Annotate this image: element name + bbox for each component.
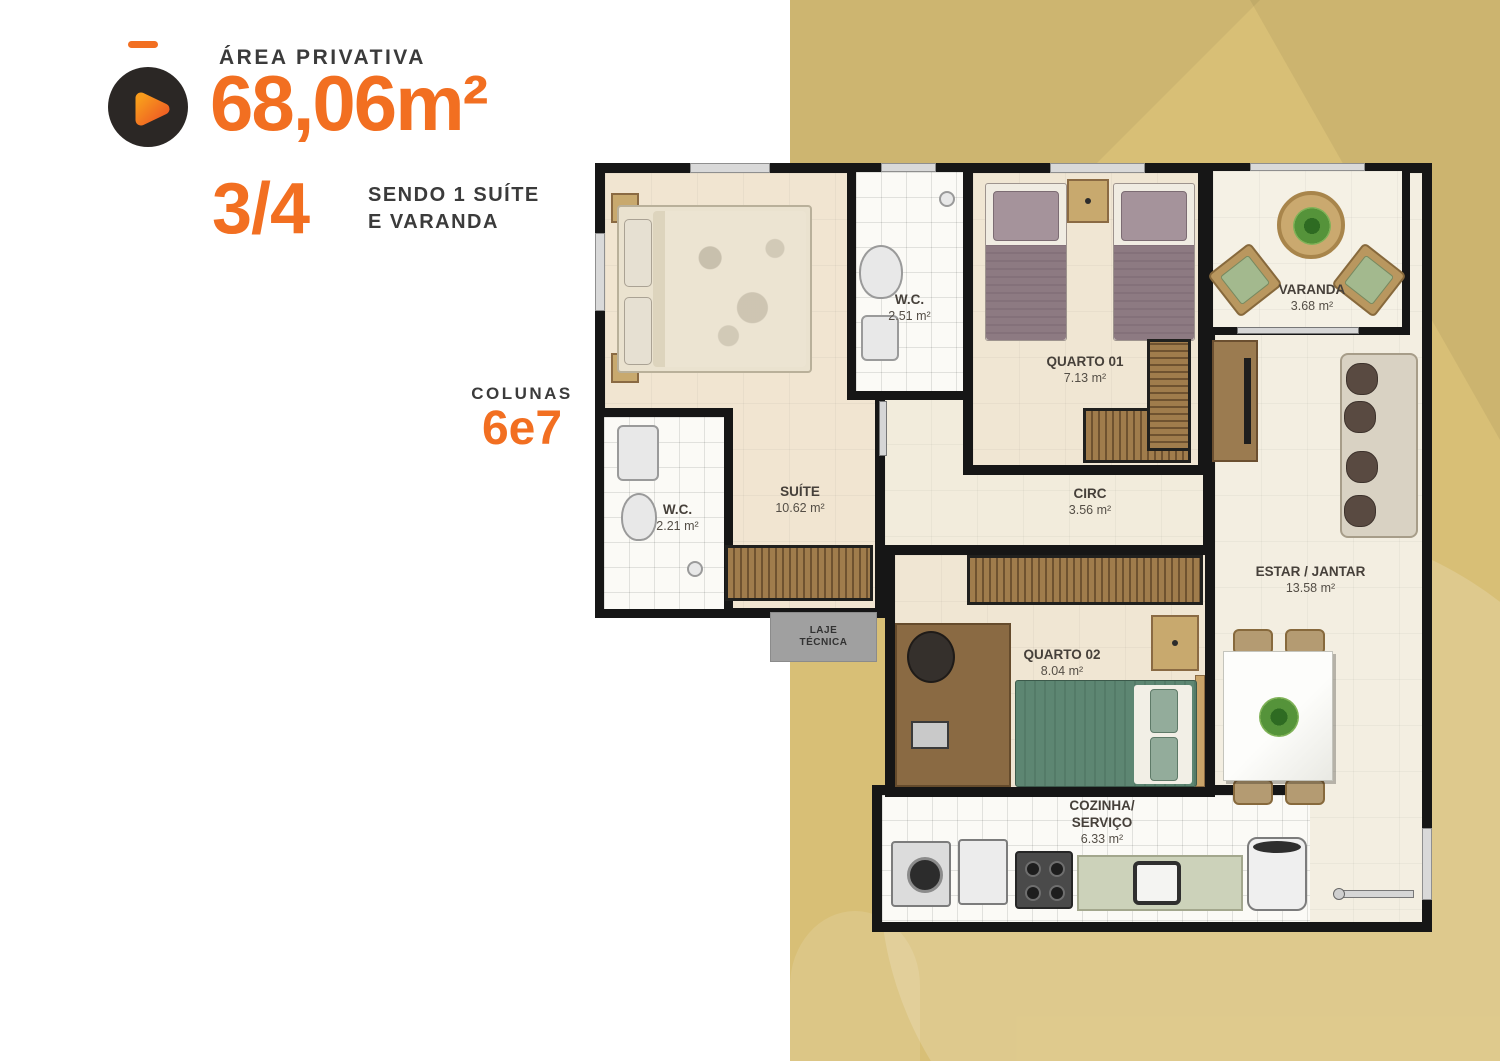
varanda-round-table xyxy=(1277,191,1345,259)
gold-facet-light-curve xyxy=(790,911,920,1061)
room-label-estar: ESTAR / JANTAR 13.58 m² xyxy=(1223,563,1398,597)
entrance-door-knob xyxy=(1333,888,1345,900)
washing-machine xyxy=(891,841,951,907)
window xyxy=(1050,163,1145,173)
floorplan: LAJE TÉCNICA xyxy=(595,163,1432,932)
window xyxy=(881,163,936,172)
room-label-quarto02: QUARTO 02 8.04 m² xyxy=(987,646,1137,680)
sofa xyxy=(1340,353,1418,538)
wc-social-shower-head xyxy=(939,191,955,207)
quarto02-wardrobe xyxy=(967,555,1203,605)
columns-block: COLUNAS 6e7 xyxy=(452,384,592,454)
room-label-wc-social: W.C. 2.51 m² xyxy=(857,291,962,325)
dining-table xyxy=(1223,651,1333,781)
fraction-note-line1: SENDO 1 SUÍTE xyxy=(368,182,540,209)
room-label-quarto01: QUARTO 01 7.13 m² xyxy=(1010,353,1160,387)
columns-value: 6e7 xyxy=(452,404,592,454)
tv-rack xyxy=(1212,340,1258,462)
water-tank xyxy=(1247,837,1307,911)
quarto02-desk-chair xyxy=(907,631,955,683)
suite-double-bed xyxy=(617,205,812,373)
wc-suite-sink xyxy=(617,425,659,481)
room-label-circ: CIRC 3.56 m² xyxy=(1015,485,1165,519)
quarto02-double-bed xyxy=(1015,680,1197,787)
fraction-note: SENDO 1 SUÍTE E VARANDA xyxy=(368,182,540,236)
area-value: 68,06m² xyxy=(210,58,487,149)
quarto01-twin-bed xyxy=(1113,183,1195,341)
varanda-sliding-door xyxy=(1237,327,1359,334)
columns-label: COLUNAS xyxy=(452,384,592,404)
room-label-cozinha: COZINHA/ SERVIÇO 6.33 m² xyxy=(1027,797,1177,848)
stove xyxy=(1015,851,1073,909)
room-label-suite: SUÍTE 10.62 m² xyxy=(725,483,875,517)
suite-door xyxy=(879,401,887,456)
accent-dash-icon xyxy=(128,41,158,48)
kitchen-sink xyxy=(1133,861,1181,905)
window xyxy=(1422,828,1432,900)
laje-tecnica-label: LAJE TÉCNICA xyxy=(800,625,848,649)
dining-chair xyxy=(1233,779,1273,805)
window xyxy=(595,233,605,311)
dining-chair xyxy=(1285,779,1325,805)
marketing-floorplan-page: ÁREA PRIVATIVA 68,06m² 3/4 SENDO 1 SUÍTE… xyxy=(0,0,1500,1061)
quarto01-nightstand xyxy=(1067,179,1109,223)
wc-suite-shower-drain xyxy=(687,561,703,577)
room-label-varanda: VARANDA 3.68 m² xyxy=(1252,281,1372,315)
window xyxy=(690,163,770,173)
fraction-value: 3/4 xyxy=(212,168,309,250)
suite-wardrobe xyxy=(725,545,873,601)
quarto02-headboard-art xyxy=(1151,615,1199,671)
window xyxy=(1250,163,1365,171)
room-label-wc-suite: W.C. 2.21 m² xyxy=(625,501,730,535)
fraction-note-line2: E VARANDA xyxy=(368,209,540,236)
play-icon xyxy=(108,67,188,147)
quarto01-twin-bed xyxy=(985,183,1067,341)
kitchen-cabinet xyxy=(958,839,1008,905)
laje-tecnica-box: LAJE TÉCNICA xyxy=(770,612,877,662)
entrance-door xyxy=(1340,890,1414,898)
